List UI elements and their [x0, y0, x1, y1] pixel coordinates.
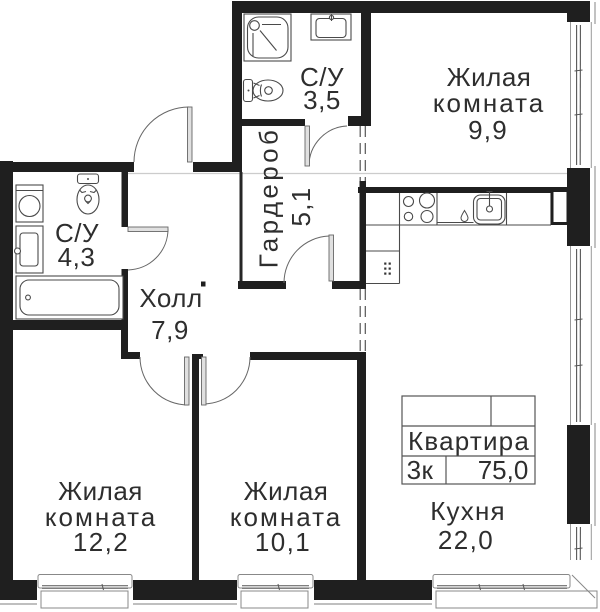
- svg-text:Гардероб: Гардероб: [254, 127, 284, 269]
- svg-text:5,1: 5,1: [286, 187, 316, 227]
